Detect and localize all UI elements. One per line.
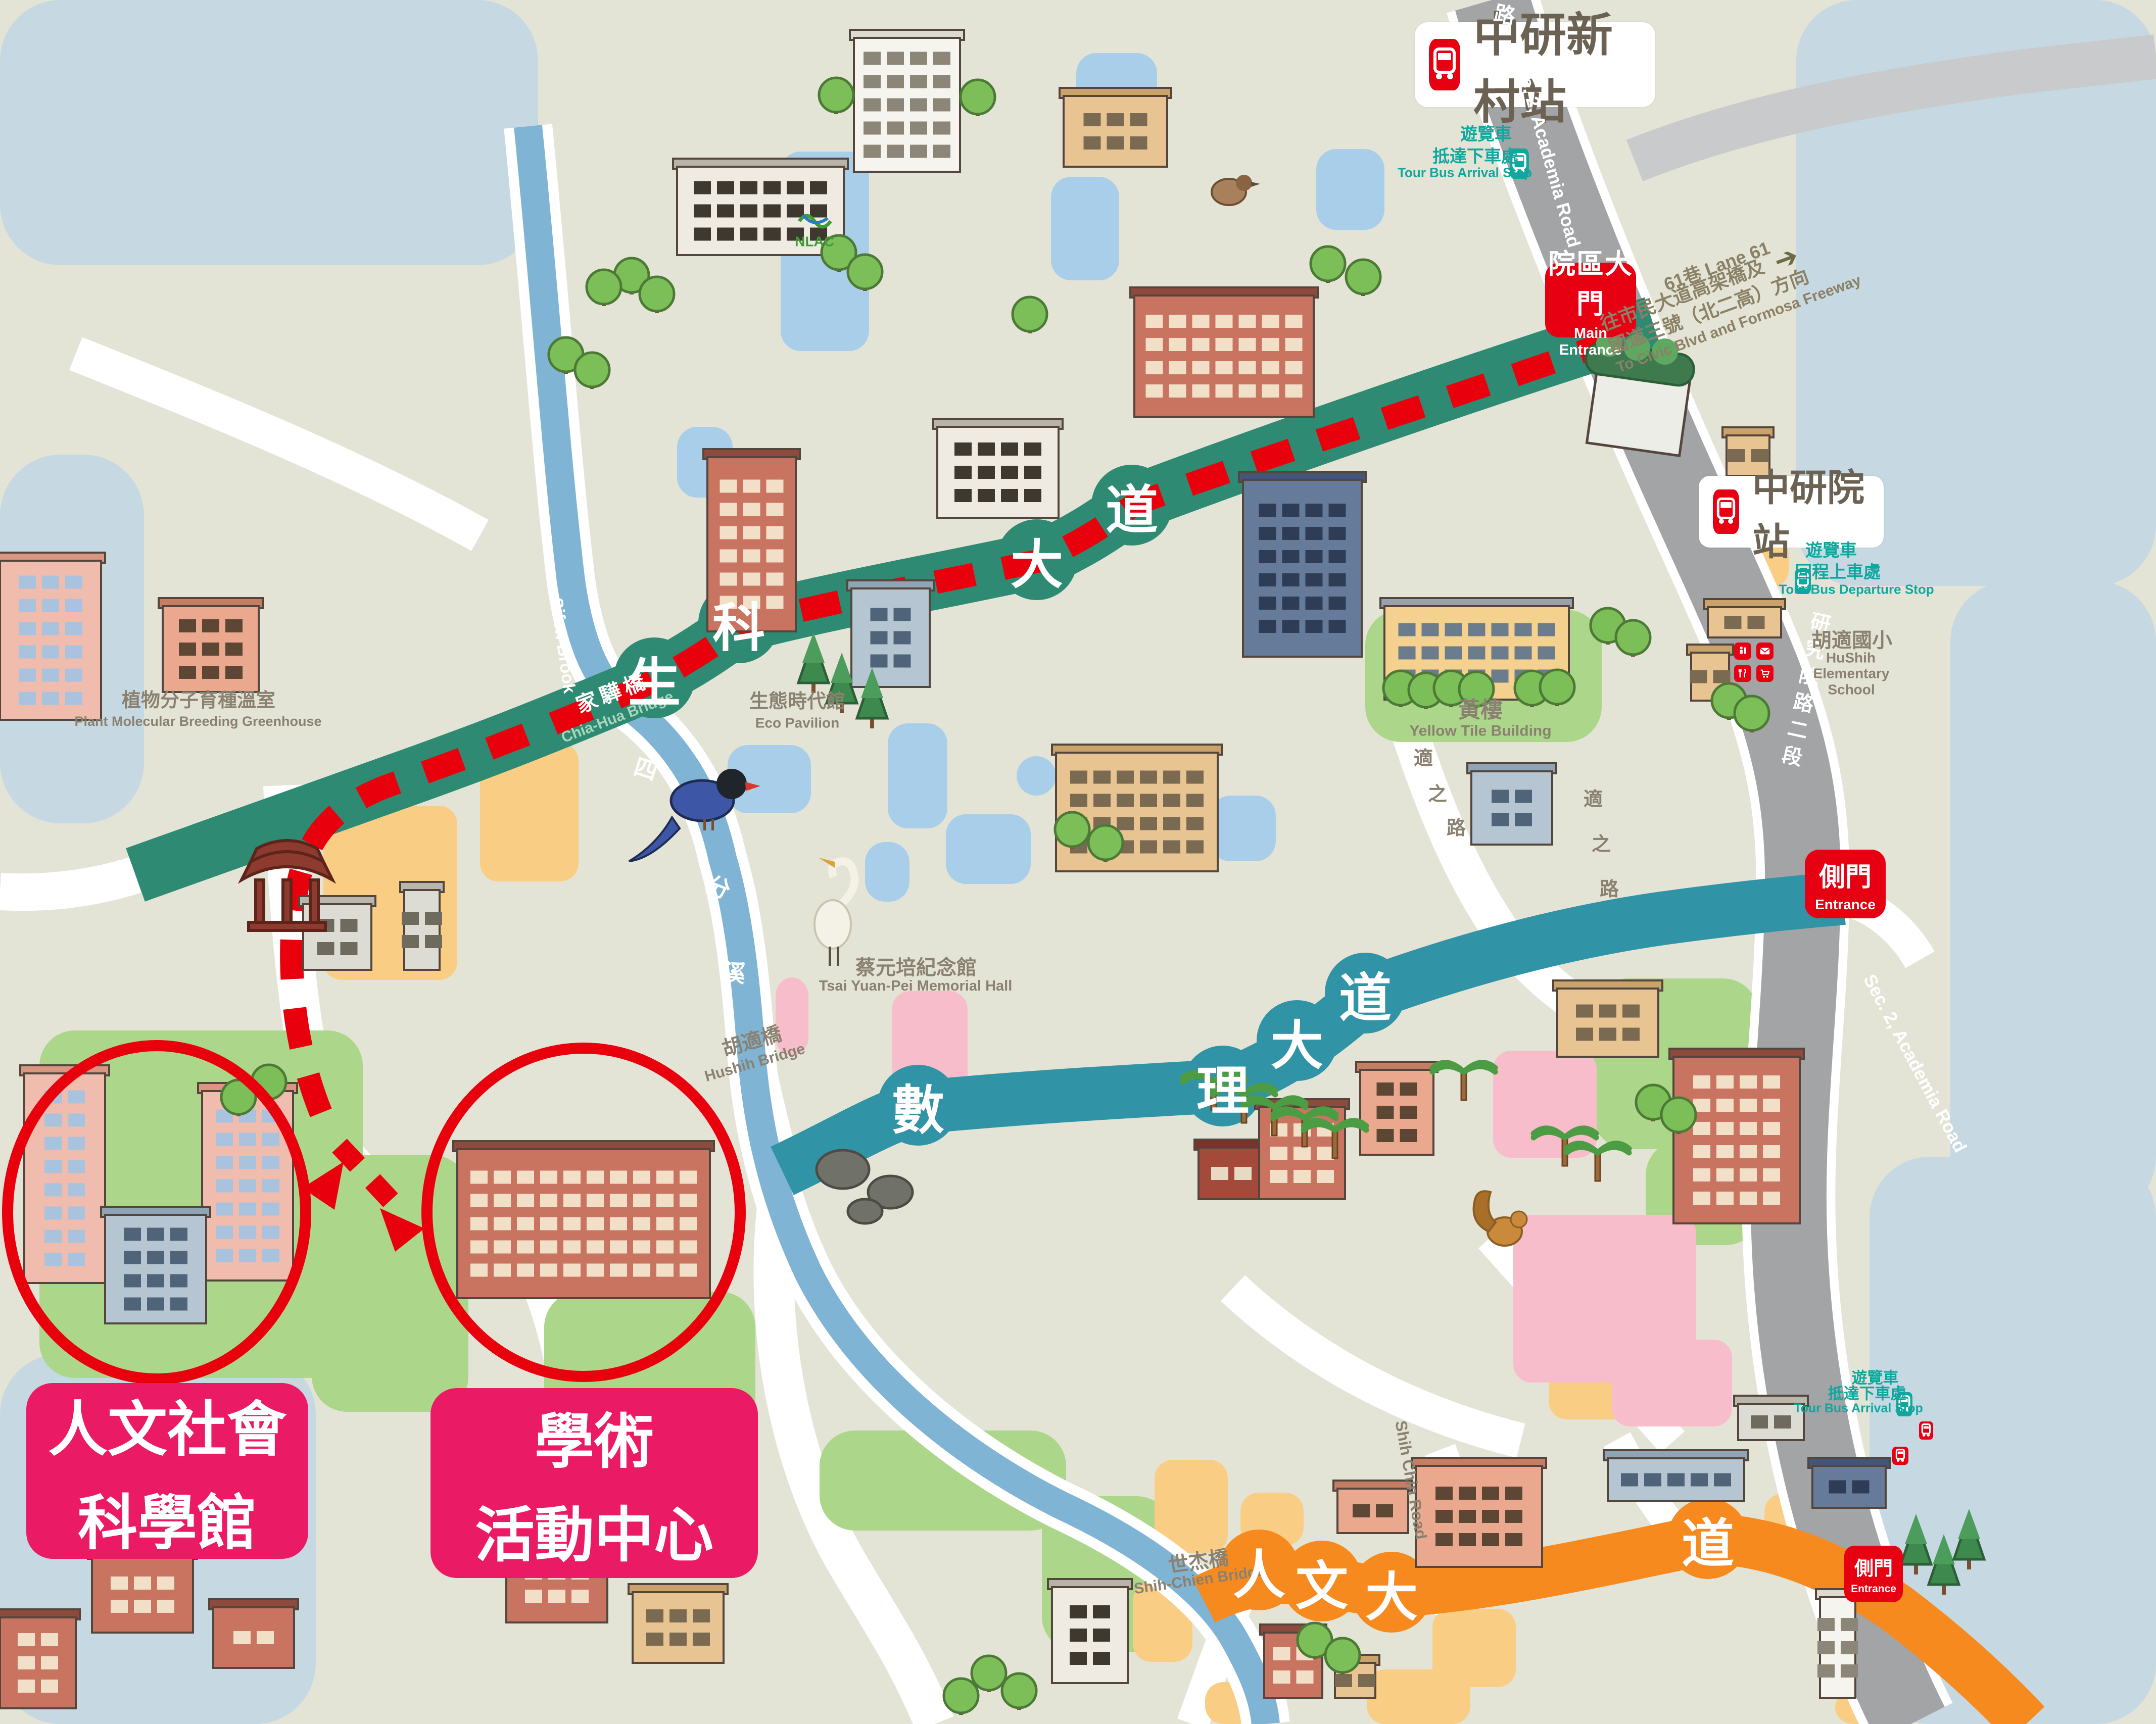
bus-stop-icon-red <box>1892 1447 1908 1465</box>
avenue-name-char: 道 <box>1667 1498 1748 1579</box>
place-label-eco-en: Eco Pavilion <box>755 715 840 730</box>
mail-icon <box>1756 643 1774 660</box>
road-label-shih-chin: Shih Chin Road <box>1392 1419 1429 1541</box>
badge-side-entrance-bottom: 側門 Entrance <box>1844 1546 1903 1602</box>
place-label-greenhouse-cn: 植物分子育種溫室 <box>122 691 275 711</box>
road-char-shizhi: 路 <box>1447 819 1466 839</box>
bridge-label-hushih-en: Hushih Bridge <box>703 1041 807 1085</box>
tourbus-arrival-top-cn2: 抵達下車處 <box>1432 148 1518 166</box>
callout-line: 學術 <box>535 1393 654 1480</box>
bridge-label-hushih-cn: 胡適橋 <box>720 1023 784 1060</box>
badge-side-entrance-right: 側門 Entrance <box>1805 850 1886 918</box>
tour-bus-icon-teal <box>1510 149 1529 179</box>
road-char-shizhi: 之 <box>1428 785 1447 805</box>
campus-service-icons <box>1734 643 1774 682</box>
avenue-name-char: 大 <box>1351 1552 1432 1633</box>
avenue-name-char: 大 <box>996 519 1077 600</box>
avenue-name-char: 科 <box>698 582 779 663</box>
bus-icon-red <box>1429 39 1460 90</box>
campus-map: 中研新村站 中研院站 院區大門 Main Entrance 側門 Entranc… <box>0 0 2156 1724</box>
tour-bus-icon-teal <box>1795 569 1811 594</box>
restroom-icon <box>1734 643 1751 660</box>
stream-char: 分 <box>703 872 734 903</box>
place-label-yellow-cn: 黃樓 <box>1458 699 1503 722</box>
road-char-shizhi2: 適 <box>1584 790 1603 810</box>
place-label-tsai-cn: 蔡元培紀念館 <box>855 957 977 978</box>
badge-cn: 側門 <box>1819 856 1872 894</box>
avenue-name-char: 數 <box>878 1065 959 1146</box>
road-char-shizhi2: 之 <box>1592 835 1611 855</box>
place-label-hushih-school-en1: HuShih <box>1826 650 1876 665</box>
place-label-hushih-school-cn: 胡適國小 <box>1811 630 1892 651</box>
nlac-logo-icon <box>792 206 839 234</box>
avenue-name-char: 生 <box>614 637 695 718</box>
restaurant-icon <box>1734 665 1751 682</box>
place-label-hushih-school-en2: Elementary <box>1813 666 1890 680</box>
place-label-greenhouse-en: Plant Molecular Breeding Greenhouse <box>74 714 321 728</box>
place-label-eco-cn: 生態時代館 <box>749 692 845 712</box>
road-char-shizhi2: 路 <box>1600 880 1619 900</box>
badge-en: Entrance <box>1815 897 1876 913</box>
bus-icon-red <box>1713 489 1739 534</box>
road-label-yanjiouyuan-sec2: 研究院路二段 <box>1777 610 1831 774</box>
shop-cart-icon <box>1756 665 1774 682</box>
stream-char: 四 <box>631 754 661 784</box>
place-label-tsai-en: Tsai Yuan-Pei Memorial Hall <box>819 978 1013 994</box>
place-label-hushih-school-en3: School <box>1828 682 1875 697</box>
avenue-name-char: 道 <box>1325 953 1406 1033</box>
station-label-academia: 中研院站 <box>1699 476 1884 548</box>
avenue-name-char: 道 <box>1091 465 1172 546</box>
callout-line: 活動中心 <box>475 1487 713 1573</box>
badge-cn: 側門 <box>1854 1553 1893 1581</box>
stream-char: 溪 <box>721 959 747 987</box>
badge-en: Entrance <box>1851 1583 1896 1595</box>
stream-label-sifen-brook: Sifen Brook <box>547 597 578 695</box>
avenue-name-char: 文 <box>1281 1541 1362 1621</box>
station-label-xinvillage: 中研新村站 <box>1415 22 1655 107</box>
avenue-name-char: 理 <box>1182 1046 1263 1126</box>
nlac-logo-text: NLAC <box>795 234 834 249</box>
callout-humanities-social-sciences-building: 人文社會 科學館 <box>26 1383 308 1559</box>
callout-line: 人文社會 <box>48 1381 286 1467</box>
tour-bus-icon-teal <box>1896 1392 1912 1416</box>
callout-academic-activity-center: 學術 活動中心 <box>430 1388 758 1578</box>
station-name: 中研新村站 <box>1473 0 1641 132</box>
tourbus-arrival-bottom-cn2: 抵達下車處 <box>1828 1386 1906 1403</box>
station-name: 中研院站 <box>1752 458 1870 566</box>
tourbus-arrival-bottom-cn1: 遊覽車 <box>1852 1370 1899 1387</box>
place-label-yellow-en: Yellow Tile Building <box>1409 723 1551 739</box>
road-label-academia-sec2-bottom: Sec. 2, Academia Road <box>1860 971 1970 1156</box>
direction-sign-freeway: 往市民大道高架橋及 國道三號（北二高）方向 To Civic Blvd and … <box>1597 226 1863 377</box>
avenue-name-char: 大 <box>1257 1000 1337 1081</box>
bus-stop-icon-red <box>1919 1421 1933 1440</box>
road-char-shizhi: 適 <box>1414 749 1433 769</box>
callout-line: 科學館 <box>78 1474 257 1561</box>
